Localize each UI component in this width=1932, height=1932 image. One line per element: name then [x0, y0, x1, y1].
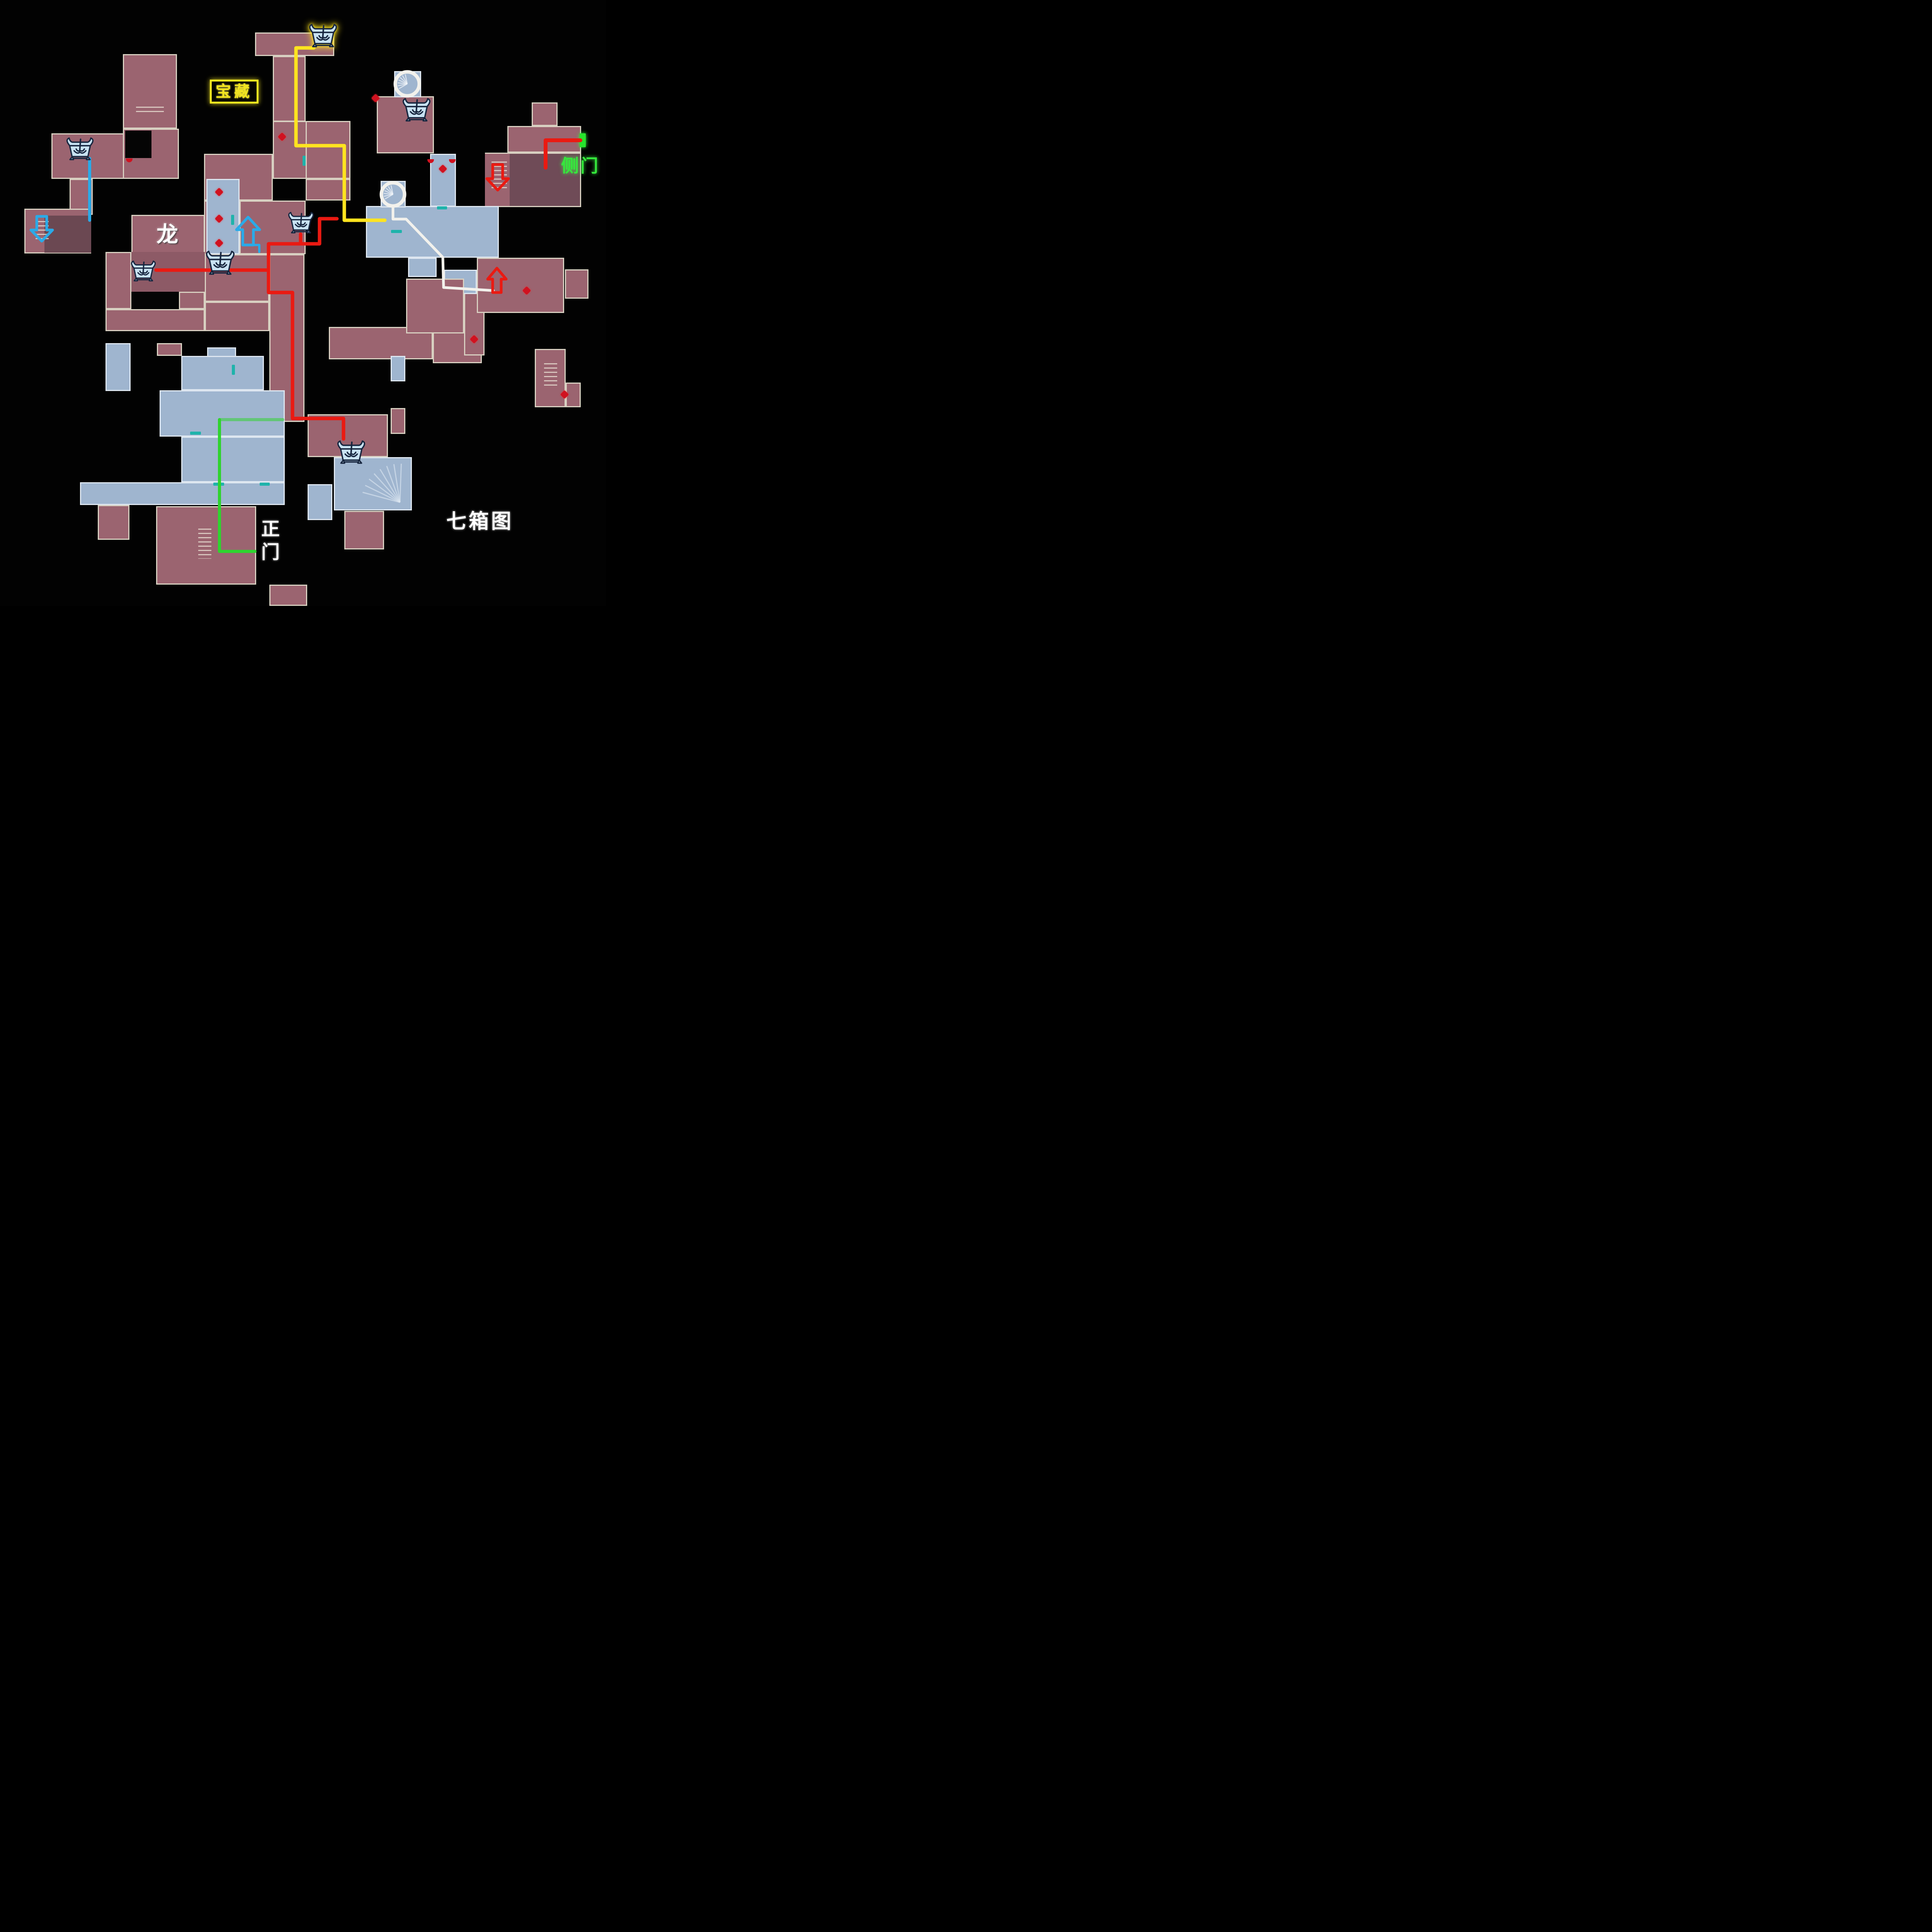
- side-door-label: 侧门: [561, 156, 600, 176]
- door-marker: [190, 432, 201, 435]
- map-room: [98, 505, 129, 540]
- map-room: [205, 302, 269, 331]
- map-notch: [131, 292, 179, 309]
- door-marker: [437, 206, 447, 209]
- door-marker: [213, 483, 224, 486]
- map-room: [160, 390, 285, 437]
- treasure-chest-icon: [285, 211, 317, 236]
- door-marker: [232, 365, 235, 375]
- stairs-drawing: [492, 162, 507, 190]
- treasure-chest-icon: [400, 97, 434, 124]
- door-marker: [231, 215, 234, 225]
- treasure-label: 宝藏: [210, 80, 259, 104]
- map-room: [344, 511, 384, 549]
- room-shade: [44, 216, 91, 253]
- interior-wall: [205, 301, 269, 302]
- treasure-chest-icon: [306, 22, 340, 50]
- treasure-chest-icon: [130, 259, 157, 284]
- map-room: [394, 71, 421, 97]
- map-room: [80, 482, 285, 505]
- dragon-label: 龙: [156, 223, 178, 247]
- stairs-drawing: [36, 221, 49, 240]
- map-room: [391, 408, 405, 434]
- map-room: [381, 181, 406, 207]
- map-room: [269, 585, 307, 606]
- stairs-drawing: [136, 107, 164, 115]
- interior-wall: [306, 122, 307, 201]
- map-room: [565, 269, 588, 299]
- map-room: [123, 54, 177, 129]
- map-room: [181, 437, 285, 482]
- door-marker: [260, 483, 270, 486]
- map-room: [477, 258, 564, 313]
- map-room: [391, 356, 405, 381]
- map-room: [273, 56, 306, 122]
- map-room: [532, 102, 558, 126]
- map-room: [406, 279, 464, 333]
- treasure-chest-icon: [63, 136, 97, 163]
- map-room: [273, 121, 350, 179]
- map-room: [306, 179, 350, 201]
- map-stage: 宝藏 侧门 龙 正 门 七箱图: [0, 0, 606, 606]
- main-gate-label: 正 门: [261, 518, 280, 564]
- door-marker: [391, 230, 402, 233]
- map-room: [157, 343, 182, 356]
- map-room: [181, 356, 264, 390]
- map-room: [105, 343, 131, 391]
- map-room: [308, 484, 332, 520]
- map-room: [105, 252, 131, 309]
- map-room: [366, 206, 499, 258]
- interior-wall: [273, 178, 350, 179]
- stairs-drawing: [198, 529, 211, 559]
- map-room: [179, 292, 205, 309]
- map-room: [105, 309, 205, 331]
- map-room: [408, 258, 437, 277]
- map-room: [507, 126, 581, 153]
- treasure-chest-icon: [204, 249, 236, 278]
- map-title: 七箱图: [446, 511, 514, 533]
- treasure-chest-icon: [334, 439, 369, 467]
- side-door-marker: [580, 133, 586, 147]
- door-marker: [303, 156, 306, 166]
- stairs-drawing: [544, 363, 557, 386]
- map-notch: [125, 131, 151, 158]
